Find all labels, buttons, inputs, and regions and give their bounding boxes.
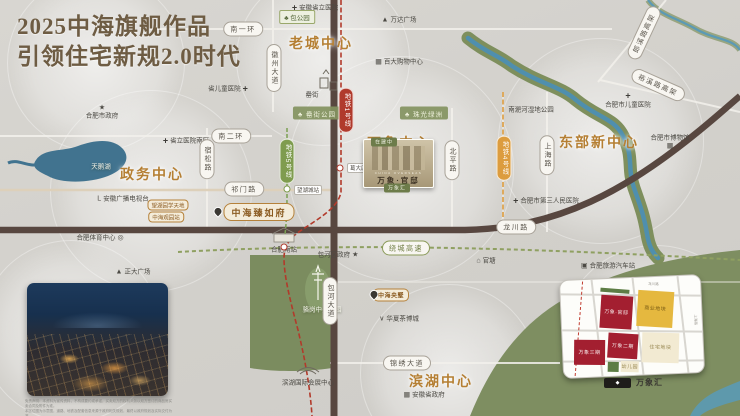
landmark-万达广场: ▲万达广场 <box>382 16 417 23</box>
inset-block <box>608 362 619 372</box>
park-label-包公园: ♣ 包公园 <box>279 10 315 24</box>
road-pill: 祁门路 <box>224 182 264 197</box>
inset-block-万象三期: 万象三期 <box>574 340 605 365</box>
metro-line-pill: 地铁5号线 <box>280 139 295 184</box>
road-pill: 绕城高速 <box>382 241 430 256</box>
disclaimer-line: 免责声明：本资料为宣传资料，不构成要约或承诺，买卖双方的权利义务以双方签订的商品… <box>25 399 175 409</box>
inset-road-label: 龙川路 <box>648 282 659 287</box>
star-icon: ★ <box>99 104 105 111</box>
photo-city-lights <box>27 334 168 396</box>
disclaimer-line: 本区位图为示意图，道路、地铁及配套信息来源于政府相关规划，最终以政府规划及实际交… <box>25 409 175 416</box>
landmark-正大广场: ▲正大广场 <box>116 268 151 275</box>
title-line-2: 引领住宅新规2.0时代 <box>17 42 241 72</box>
park-label-罍街公园: ♣ 罍街公园 <box>293 107 341 120</box>
road-pill: 宿松路 <box>200 139 215 179</box>
wanxianghui-label: 万象汇 <box>636 377 663 388</box>
landmark-label: 合肥体育中心 <box>76 234 115 241</box>
landmark-label: 省儿童医院 <box>208 85 241 92</box>
center-label-government-center: 政务中心 <box>120 164 184 184</box>
landmark-官塘: ⌂官塘 <box>476 257 495 264</box>
landmark-label: 罍街 <box>306 91 319 98</box>
map-advert-canvas: 2025中海旗舰作品 引领住宅新规2.0时代 CHINA OVERSEAS 万象… <box>0 0 740 416</box>
hospital-cross-icon: + <box>163 137 168 146</box>
metro-line-pill: 地铁1号线 <box>339 88 354 133</box>
project-pill-望湖园学天地: 望湖园学天地 <box>147 200 188 211</box>
page-title: 2025中海旗舰作品 引领住宅新规2.0时代 <box>17 12 241 72</box>
mall-icon: ▦ <box>375 58 382 65</box>
hospital-cross-icon: + <box>625 91 630 100</box>
center-label-old-town-center: 老城中心 <box>289 33 353 53</box>
inset-block-幼儿园: 幼儿园 <box>621 361 639 372</box>
inset-block-商业地块: 商业地块 <box>636 290 674 328</box>
photo-sky <box>27 283 168 328</box>
project-pill-中海臻如府: 中海臻如府 <box>223 203 294 221</box>
road-pill: 锦绣大道 <box>383 356 431 371</box>
inset-road <box>562 329 702 332</box>
wanxianghui-tag: 万象汇 <box>384 184 410 193</box>
city-night-photo <box>27 283 168 396</box>
center-label-binhu-center: 滨湖中心 <box>409 371 473 391</box>
landmark-南淝河湿地公园: 南淝河湿地公园 <box>508 106 554 113</box>
landmark-label: 滨湖国际会展中心 <box>282 379 334 386</box>
metro-station-dot <box>284 186 291 193</box>
hospital-cross-icon: + <box>243 85 248 94</box>
disclaimer-text: 免责声明：本资料为宣传资料，不构成要约或承诺，买卖双方的权利义务以双方签订的商品… <box>25 399 175 416</box>
landmark-罍街: 罍街 <box>306 91 319 98</box>
inset-block-万象二期: 万象二期 <box>607 333 638 360</box>
landmark-合肥旅游汽车站: ▣合肥旅游汽车站 <box>581 262 635 269</box>
landmark-label: 百大购物中心 <box>384 58 423 65</box>
landmark-label: 合肥市儿童医院 <box>605 101 651 108</box>
museum-icon: ▦ <box>667 143 674 150</box>
wanxianghui-legend: ◆ 万象汇 <box>604 377 663 388</box>
landmark-合肥市博物馆: 合肥市博物馆▦ <box>651 134 690 149</box>
landmark-合肥市儿童医院: +合肥市儿童医院 <box>605 91 651 108</box>
metro-station-label: 望湖城站 <box>294 185 322 195</box>
landmark-百大购物中心: ▦百大购物中心 <box>375 58 423 65</box>
landmark-label: 合肥旅游汽车站 <box>590 262 636 269</box>
landmark-省儿童医院: 省儿童医院+ <box>208 85 248 94</box>
road-pill: 包河大道 <box>323 277 338 325</box>
landmark-天鹅湖: 天鹅湖 <box>91 163 111 170</box>
road-pill: 龙川路 <box>496 220 536 235</box>
road-pill: 南二环 <box>211 129 251 144</box>
metro-station-dot <box>337 165 344 172</box>
star-icon: ★ <box>352 251 358 258</box>
stadium-icon: ◎ <box>117 234 123 241</box>
road-pill: 徽州大道 <box>267 44 282 92</box>
landmark-label: 合肥市第三人民医院 <box>520 197 579 204</box>
inset-masterplan-map: 商业地块万象·官邸万象二期万象三期住宅地块幼儿园龙川路上海路 <box>559 274 705 379</box>
landmark-label: 南淝河湿地公园 <box>508 106 554 113</box>
landmark-合肥体育中心: 合肥体育中心◎ <box>76 234 123 241</box>
landmark-合肥市政府: ★合肥市政府 <box>86 104 119 119</box>
project-building-render <box>372 146 425 170</box>
building-icon: ▲ <box>382 16 389 23</box>
home-icon: ⌂ <box>476 257 480 264</box>
landmark-label: 安徽省政府 <box>412 391 445 398</box>
metro-station-dot <box>281 244 288 251</box>
landmark-安徽广播电视台: L安徽广播电视台 <box>97 195 148 202</box>
metro-line-pill: 地铁4号线 <box>497 136 512 181</box>
title-line-1: 2025中海旗舰作品 <box>17 12 241 42</box>
landmark-label: 官塘 <box>483 257 496 264</box>
project-pill-中海观园站: 中海观园站 <box>148 212 184 223</box>
park-label-珠光绿洲: ♣ 珠光绿洲 <box>400 107 448 120</box>
wanxianghui-logo: ◆ <box>604 378 631 388</box>
landmark-label: 天鹅湖 <box>91 163 111 170</box>
hospital-cross-icon: + <box>513 197 518 206</box>
landmark-label: 包河区政府 <box>318 251 351 258</box>
bird-icon: ∨ <box>379 315 384 322</box>
inset-block-万象·官邸: 万象·官邸 <box>599 295 633 330</box>
landmark-安徽省政府: ▦安徽省政府 <box>403 391 444 398</box>
bus-icon: ▣ <box>581 262 588 269</box>
road-pill: 北平路 <box>445 140 460 180</box>
landmark-包河区政府: 包河区政府★ <box>318 251 359 258</box>
swan-lake <box>34 141 126 182</box>
project-status-tag: 在建中 <box>371 138 397 147</box>
landmark-label: 万达广场 <box>390 16 416 23</box>
landmark-label: 合肥市政府 <box>86 112 119 119</box>
plaza-icon: ▲ <box>116 268 123 275</box>
inset-road-label: 上海路 <box>692 314 697 325</box>
gov-building-icon: ▦ <box>403 391 410 398</box>
ne-stream-bank <box>648 0 740 50</box>
landmark-华夏茶博城: ∨华夏茶博城 <box>379 315 419 322</box>
inset-block-住宅地块: 住宅地块 <box>642 332 680 363</box>
center-label-east-new-center: 东部新中心 <box>559 132 639 152</box>
landmark-label: 安徽广播电视台 <box>103 195 149 202</box>
landmark-滨湖国际会展中心: 滨湖国际会展中心 <box>282 379 334 386</box>
landmark-label: 华夏茶博城 <box>386 315 419 322</box>
landmark-合肥市第三人民医院: +合肥市第三人民医院 <box>513 197 579 206</box>
road-pill: 上海路 <box>540 135 555 175</box>
tv-tower-icon: L <box>97 195 101 202</box>
landmark-label: 正大广场 <box>124 268 150 275</box>
landmark-label: 合肥市博物馆 <box>651 134 690 141</box>
